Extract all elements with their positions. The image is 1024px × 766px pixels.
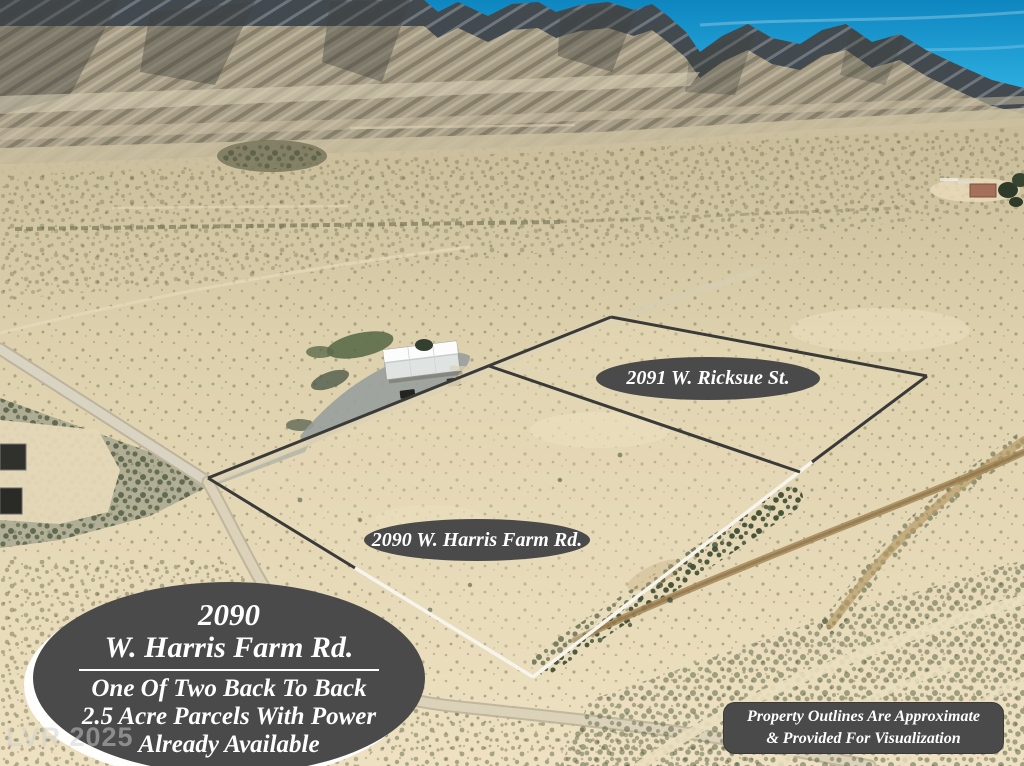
lower-parcel-address-label: 2090 W. Harris Farm Rd. [364,519,590,561]
aerial-listing-photo: 2091 W. Ricksue St. 2090 W. Harris Farm … [0,0,1024,766]
upper-parcel-address-label: 2091 W. Ricksue St. [596,357,820,400]
lower-parcel-address-text: 2090 W. Harris Farm Rd. [372,529,582,552]
photographer-watermark: LVR 2025 [6,722,134,753]
disclaimer-line-2: & Provided For Visualization [766,728,960,750]
neighbor-building [0,444,26,470]
neighbor-building [0,488,22,514]
upper-parcel-address-text: 2091 W. Ricksue St. [626,367,789,390]
badge-tagline-3: Already Available [138,731,319,759]
badge-tagline-1: One Of Two Back To Back [91,675,366,703]
property-outline-disclaimer: Property Outlines Are Approximate & Prov… [723,702,1004,754]
badge-divider-line [79,669,379,671]
badge-address-number: 2090 [198,599,260,632]
badge-street-name: W. Harris Farm Rd. [105,631,354,664]
disclaimer-line-1: Property Outlines Are Approximate [747,706,980,728]
